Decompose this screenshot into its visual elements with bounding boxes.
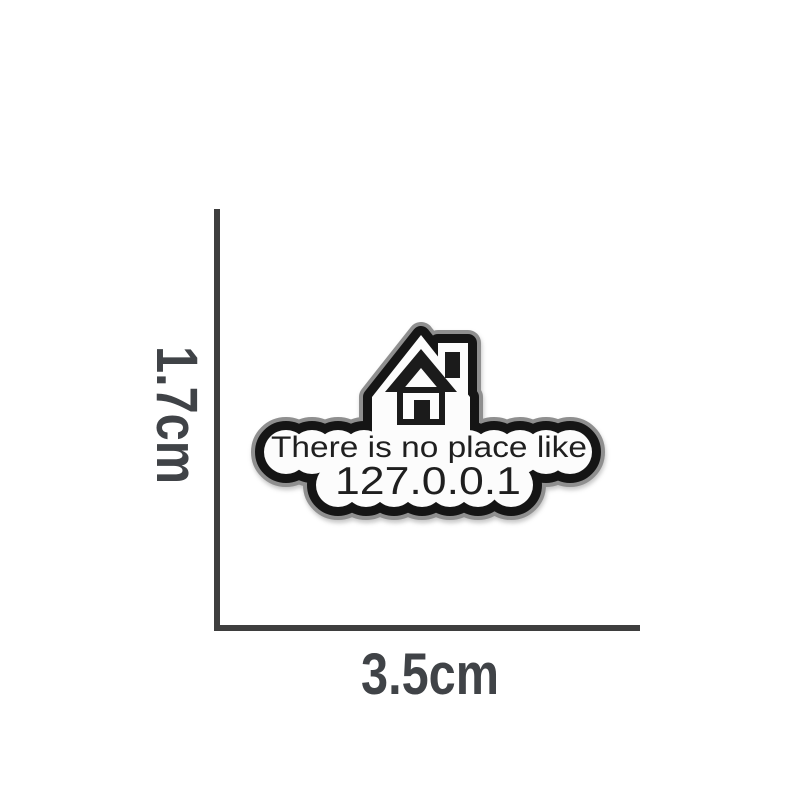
chimney	[445, 352, 460, 378]
product-photo: 1.7cm 3.5cm There is no place like 127.0…	[0, 0, 800, 800]
width-dimension-line	[214, 625, 640, 631]
width-dimension-label: 3.5cm	[361, 642, 499, 707]
pin-text-line2: 127.0.0.1	[335, 460, 521, 503]
enamel-pin: There is no place like 127.0.0.1	[264, 335, 592, 507]
door	[414, 400, 430, 425]
product-photo-canvas: 1.7cm 3.5cm There is no place like 127.0…	[0, 0, 800, 800]
height-dimension-line	[214, 209, 220, 631]
height-dimension-label: 1.7cm	[144, 346, 209, 484]
